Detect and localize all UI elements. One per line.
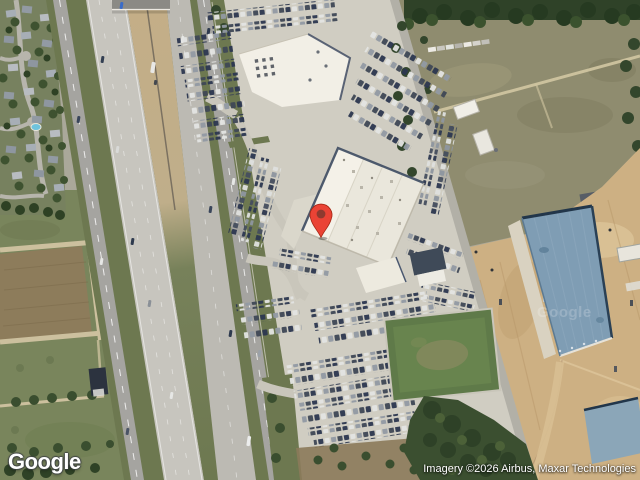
imagery-attribution: Imagery ©2026 Airbus, Maxar Technologies — [423, 463, 636, 475]
imagery-watermark: Google — [537, 304, 592, 321]
google-logo[interactable]: Google — [8, 449, 81, 475]
sports-field — [384, 309, 500, 402]
warehouse-2 — [584, 398, 640, 464]
map-viewport[interactable]: Google — [0, 0, 640, 480]
swimming-pool — [31, 124, 41, 131]
billboard — [89, 367, 109, 397]
satellite-map[interactable]: Google — [0, 0, 640, 480]
